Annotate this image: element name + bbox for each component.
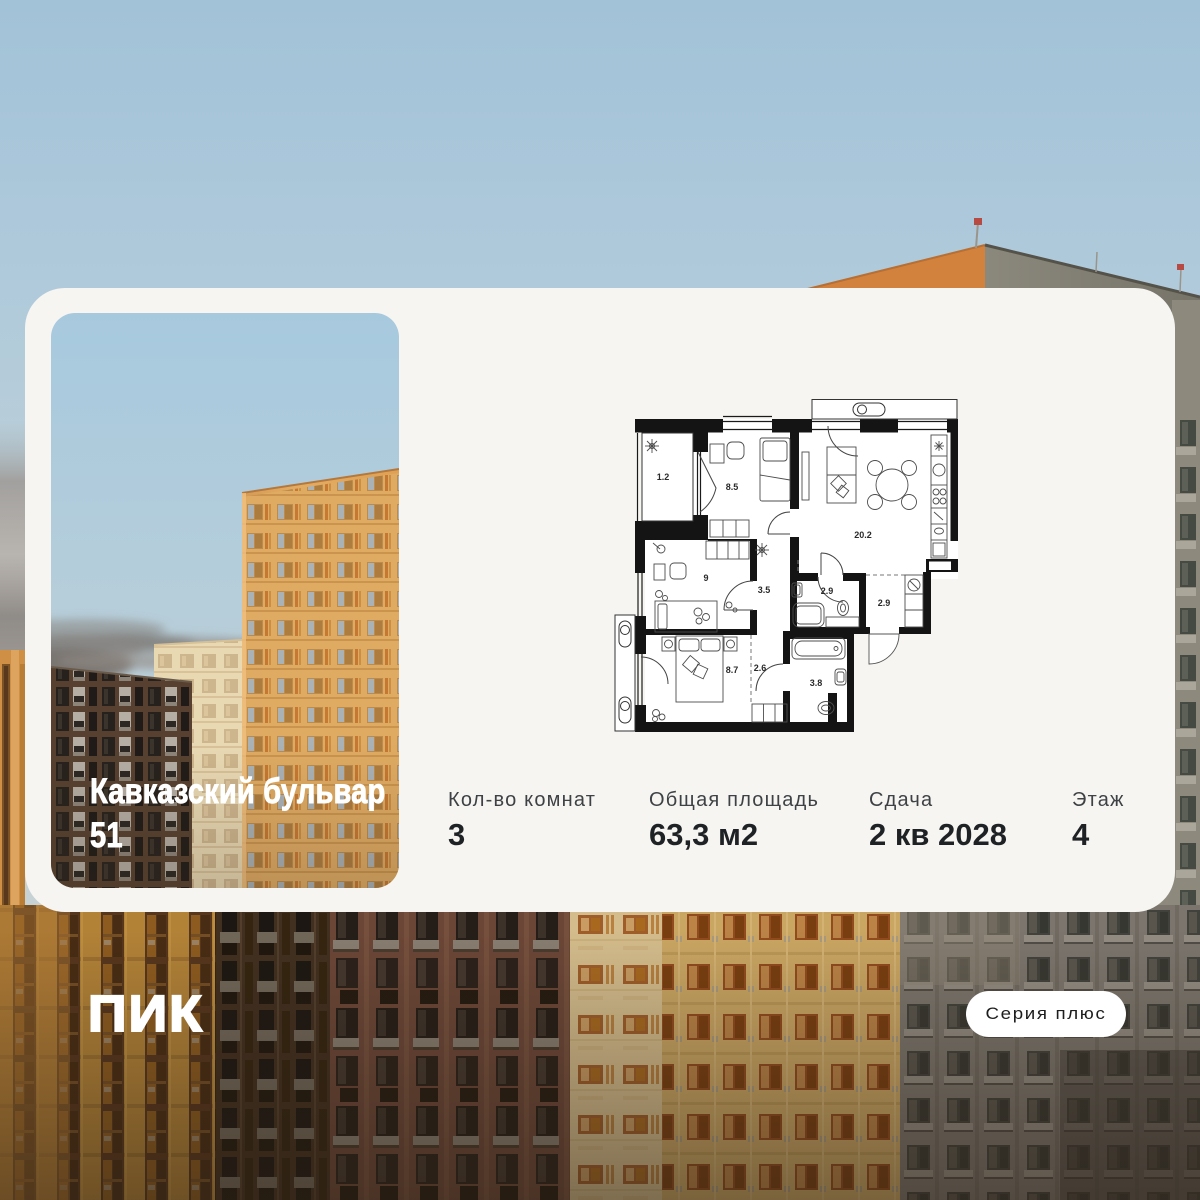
svg-text:2.6: 2.6 xyxy=(754,663,767,673)
svg-text:9: 9 xyxy=(703,573,708,583)
svg-text:2.9: 2.9 xyxy=(878,598,891,608)
svg-text:3.5: 3.5 xyxy=(758,585,771,595)
svg-text:2.9: 2.9 xyxy=(821,586,834,596)
svg-text:20.2: 20.2 xyxy=(854,530,872,540)
svg-text:1.2: 1.2 xyxy=(657,472,670,482)
svg-text:8.7: 8.7 xyxy=(726,665,739,675)
svg-text:8.5: 8.5 xyxy=(726,482,739,492)
svg-text:3.8: 3.8 xyxy=(810,678,823,688)
